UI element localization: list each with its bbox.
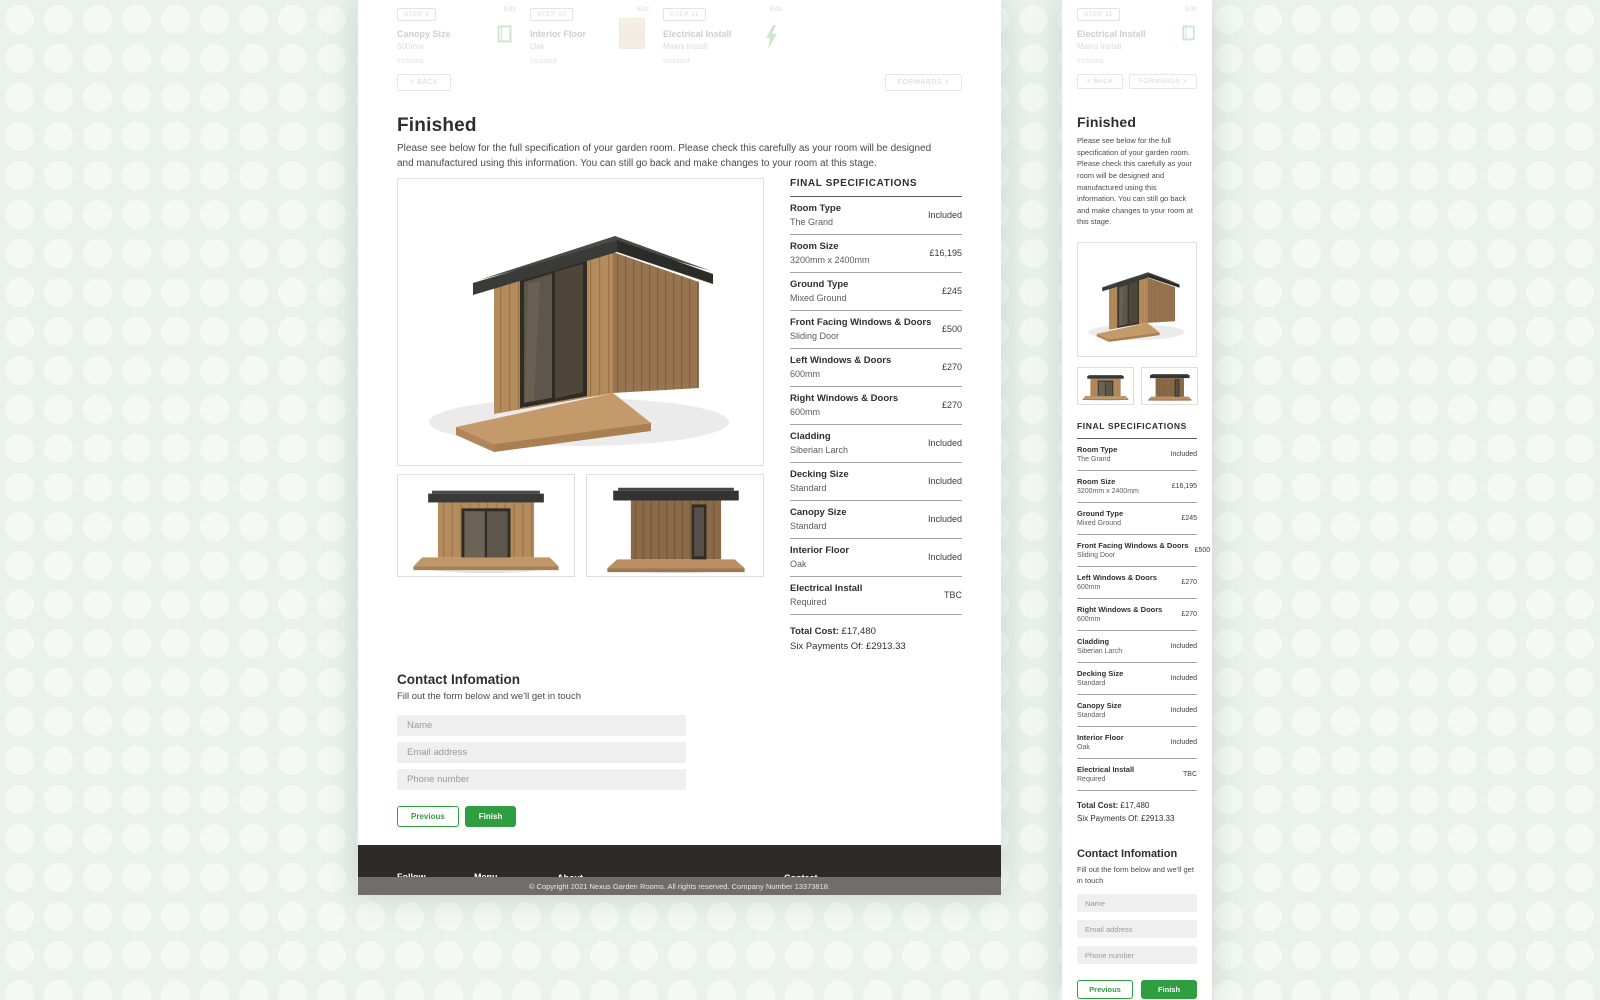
spec-row: Room Size 3200mm x 2400mm £16,195 — [1077, 471, 1197, 503]
spec-price: £16,195 — [923, 248, 962, 258]
spec-row: Room Type The Grand Included — [1077, 439, 1197, 471]
specs-heading: FINAL SPECIFICATIONS — [1077, 421, 1197, 439]
total-cost-label: Total Cost: — [1077, 801, 1118, 810]
step-card-canopy-size[interactable]: STEP 9 Edit Canopy Size 600mm Included — [397, 3, 530, 65]
spec-label: Decking Size — [790, 469, 849, 480]
contact-section: Contact Infomation Fill out the form bel… — [1077, 848, 1197, 965]
spec-label: Front Facing Windows & Doors — [1077, 541, 1189, 550]
spec-value: Standard — [790, 521, 847, 531]
spec-row: Right Windows & Doors 600mm £270 — [790, 387, 962, 425]
spec-price: £500 — [936, 324, 962, 334]
spec-label: Canopy Size — [1077, 701, 1122, 710]
spec-row: Right Windows & Doors 600mm £270 — [1077, 599, 1197, 631]
spec-row: Ground Type Mixed Ground £245 — [790, 273, 962, 311]
payments-label: Six Payments Of: — [1077, 814, 1139, 823]
payments-label: Six Payments Of: — [790, 641, 863, 652]
step-badge: STEP 11 — [663, 8, 706, 21]
spec-value: 600mm — [790, 369, 891, 379]
spec-price: £270 — [1175, 611, 1197, 618]
name-field[interactable] — [397, 715, 686, 736]
spec-label: Right Windows & Doors — [790, 393, 898, 404]
lightning-icon — [766, 25, 778, 54]
step-title: Electrical Install — [663, 29, 770, 39]
page-title: Finished — [1077, 114, 1197, 130]
finish-button[interactable]: Finish — [465, 806, 517, 827]
spec-value: 600mm — [790, 407, 898, 417]
step-value: Mains Install — [1077, 42, 1173, 51]
oak-floor-swatch-icon — [619, 18, 645, 49]
previous-button[interactable]: Previous — [1077, 980, 1133, 999]
step-status: Included — [397, 58, 504, 65]
garden-room-front-render — [398, 475, 574, 576]
spec-row: Decking Size Standard Included — [790, 463, 962, 501]
spec-row: Front Facing Windows & Doors Sliding Doo… — [790, 311, 962, 349]
spec-row: Front Facing Windows & Doors Sliding Doo… — [1077, 535, 1197, 567]
desktop-mockup: STEP 9 Edit Canopy Size 600mm Included S… — [358, 0, 1001, 895]
payments-value: £2913.33 — [866, 641, 906, 652]
spec-price: TBC — [1177, 771, 1197, 778]
room-gallery — [397, 178, 764, 654]
spec-label: Interior Floor — [1077, 733, 1124, 742]
step-value: Mains Install — [663, 42, 770, 51]
room-render-main — [397, 178, 764, 466]
finish-button[interactable]: Finish — [1141, 980, 1197, 999]
spec-label: Cladding — [1077, 637, 1122, 646]
spec-row: Decking Size Standard Included — [1077, 663, 1197, 695]
spec-value: Standard — [1077, 712, 1122, 719]
spec-price: Included — [1165, 675, 1197, 682]
edit-link[interactable]: Edit — [637, 6, 649, 13]
spec-label: Room Size — [1077, 477, 1139, 486]
spec-row: Electrical Install Required TBC — [1077, 759, 1197, 791]
spec-row: Canopy Size Standard Included — [790, 501, 962, 539]
room-thumbnail-side[interactable] — [586, 474, 764, 577]
spec-label: Room Type — [1077, 445, 1117, 454]
spec-value: Siberian Larch — [790, 445, 848, 455]
garden-room-side-render — [587, 475, 763, 576]
spec-row: Room Type The Grand Included — [790, 197, 962, 235]
spec-price: £270 — [1175, 579, 1197, 586]
spec-label: Ground Type — [790, 279, 848, 290]
spec-label: Left Windows & Doors — [790, 355, 891, 366]
specs-heading: FINAL SPECIFICATIONS — [790, 178, 962, 197]
canopy-size-icon — [497, 25, 512, 48]
spec-value: Oak — [790, 559, 849, 569]
page-description: Please see below for the full specificat… — [397, 142, 942, 171]
spec-label: Room Size — [790, 241, 870, 252]
edit-link[interactable]: Edit — [504, 6, 516, 13]
spec-price: Included — [1165, 707, 1197, 714]
back-button[interactable]: < BACK — [1077, 74, 1123, 89]
spec-row: Electrical Install Required TBC — [790, 577, 962, 615]
step-title: Canopy Size — [397, 29, 504, 39]
step-title: Electrical Install — [1077, 29, 1173, 39]
spec-row: Ground Type Mixed Ground £245 — [1077, 503, 1197, 535]
total-cost-value: £17,480 — [842, 626, 876, 637]
spec-price: £245 — [1175, 515, 1197, 522]
room-render-main — [1077, 242, 1197, 357]
spec-label: Left Windows & Doors — [1077, 573, 1157, 582]
spec-value: Mixed Ground — [1077, 520, 1123, 527]
spec-price: Included — [922, 514, 962, 524]
spec-price: £245 — [936, 286, 962, 296]
edit-link[interactable]: Edit — [770, 6, 782, 13]
spec-value: Siberian Larch — [1077, 648, 1122, 655]
spec-label: Ground Type — [1077, 509, 1123, 518]
copyright-bar: © Copyright 2021 Nexus Garden Rooms. All… — [358, 877, 1001, 895]
spec-label: Interior Floor — [790, 545, 849, 556]
wizard-steps-strip: STEP 9 Edit Canopy Size 600mm Included S… — [358, 0, 1001, 85]
spec-label: Decking Size — [1077, 669, 1123, 678]
total-cost-value: £17,480 — [1120, 801, 1149, 810]
spec-value: Standard — [790, 483, 849, 493]
spec-price: Included — [922, 476, 962, 486]
contact-heading: Contact Infomation — [397, 672, 962, 687]
spec-row: Canopy Size Standard Included — [1077, 695, 1197, 727]
wizard-steps-strip: STEP 11 Edit Electrical Install Mains In… — [1062, 0, 1212, 82]
step-status: Included — [1077, 58, 1173, 65]
step-card-electrical-install[interactable]: STEP 11 Edit Electrical Install Mains In… — [1077, 3, 1197, 65]
room-thumbnail-front[interactable] — [1077, 367, 1134, 405]
page-title: Finished — [397, 115, 962, 137]
spec-value: Required — [1077, 776, 1134, 783]
garden-room-perspective-render — [401, 182, 761, 462]
spec-row: Interior Floor Oak Included — [790, 539, 962, 577]
spec-value: 3200mm x 2400mm — [1077, 488, 1139, 495]
step-status: Included — [663, 58, 770, 65]
phone-field[interactable] — [1077, 946, 1197, 964]
spec-price: £270 — [936, 362, 962, 372]
contact-section: Contact Infomation Fill out the form bel… — [397, 672, 962, 790]
spec-row: Room Size 3200mm x 2400mm £16,195 — [790, 235, 962, 273]
spec-label: Cladding — [790, 431, 848, 442]
spec-label: Front Facing Windows & Doors — [790, 317, 931, 328]
spec-price: Included — [1165, 451, 1197, 458]
garden-room-front-render — [1078, 368, 1133, 404]
spec-value: Sliding Door — [790, 331, 931, 341]
total-cost-label: Total Cost: — [790, 626, 839, 637]
phone-field[interactable] — [397, 769, 686, 790]
contact-subheading: Fill out the form below and we'll get in… — [397, 691, 962, 702]
totals: Total Cost: £17,480 Six Payments Of: £29… — [790, 624, 962, 654]
square-outline-icon — [1182, 25, 1195, 46]
email-field[interactable] — [1077, 920, 1197, 938]
spec-value: 600mm — [1077, 584, 1157, 591]
spec-label: Canopy Size — [790, 507, 847, 518]
payments-value: £2913.33 — [1141, 814, 1174, 823]
spec-value: 3200mm x 2400mm — [790, 255, 870, 265]
spec-price: Included — [922, 552, 962, 562]
room-thumbnail-front[interactable] — [397, 474, 575, 577]
forwards-button[interactable]: FORWARDS > — [885, 74, 962, 91]
spec-price: £500 — [1189, 547, 1211, 554]
mobile-mockup: STEP 11 Edit Electrical Install Mains In… — [1062, 0, 1212, 1000]
room-thumbnail-side[interactable] — [1141, 367, 1198, 405]
forwards-button[interactable]: FORWARDS > — [1129, 74, 1197, 89]
page-description: Please see below for the full specificat… — [1077, 135, 1197, 228]
edit-link[interactable]: Edit — [1185, 6, 1197, 13]
totals: Total Cost: £17,480 Six Payments Of: £29… — [1077, 800, 1197, 826]
spec-price: £270 — [936, 400, 962, 410]
garden-room-side-render — [1142, 368, 1197, 404]
step-badge: STEP 10 — [530, 8, 573, 21]
spec-value: Required — [790, 597, 862, 607]
spec-row: Left Windows & Doors 600mm £270 — [1077, 567, 1197, 599]
spec-list: Room Type The Grand Included Room Size 3… — [1077, 439, 1197, 791]
step-value: 600mm — [397, 42, 504, 51]
spec-value: Standard — [1077, 680, 1123, 687]
step-card-electrical-install[interactable]: STEP 11 Edit Electrical Install Mains In… — [663, 3, 796, 65]
spec-label: Electrical Install — [1077, 765, 1134, 774]
spec-price: TBC — [938, 590, 962, 600]
spec-price: £16,195 — [1166, 483, 1197, 490]
email-field[interactable] — [397, 742, 686, 763]
step-card-interior-floor[interactable]: STEP 10 Edit Interior Floor Oak Included — [530, 3, 663, 65]
step-badge: STEP 11 — [1077, 8, 1120, 21]
spec-row: Cladding Siberian Larch Included — [790, 425, 962, 463]
spec-row: Left Windows & Doors 600mm £270 — [790, 349, 962, 387]
previous-button[interactable]: Previous — [397, 806, 459, 827]
spec-row: Interior Floor Oak Included — [1077, 727, 1197, 759]
spec-label: Right Windows & Doors — [1077, 605, 1162, 614]
spec-value: The Grand — [790, 217, 841, 227]
contact-subheading: Fill out the form below and we'll get in… — [1077, 864, 1197, 887]
step-status: Included — [530, 58, 637, 65]
contact-heading: Contact Infomation — [1077, 848, 1197, 860]
spec-label: Room Type — [790, 203, 841, 214]
spec-price: Included — [1165, 739, 1197, 746]
spec-value: 600mm — [1077, 616, 1162, 623]
spec-value: Mixed Ground — [790, 293, 848, 303]
spec-row: Cladding Siberian Larch Included — [1077, 631, 1197, 663]
spec-value: Sliding Door — [1077, 552, 1189, 559]
spec-value: Oak — [1077, 744, 1124, 751]
step-badge: STEP 9 — [397, 8, 436, 21]
garden-room-perspective-render — [1079, 245, 1195, 355]
spec-list: Room Type The Grand Included Room Size 3… — [790, 197, 962, 615]
spec-value: The Grand — [1077, 456, 1117, 463]
spec-price: Included — [922, 438, 962, 448]
final-specifications: FINAL SPECIFICATIONS Room Type The Grand… — [790, 178, 962, 654]
spec-label: Electrical Install — [790, 583, 862, 594]
spec-price: Included — [922, 210, 962, 220]
spec-price: Included — [1165, 643, 1197, 650]
back-button[interactable]: < BACK — [397, 74, 451, 91]
name-field[interactable] — [1077, 894, 1197, 912]
